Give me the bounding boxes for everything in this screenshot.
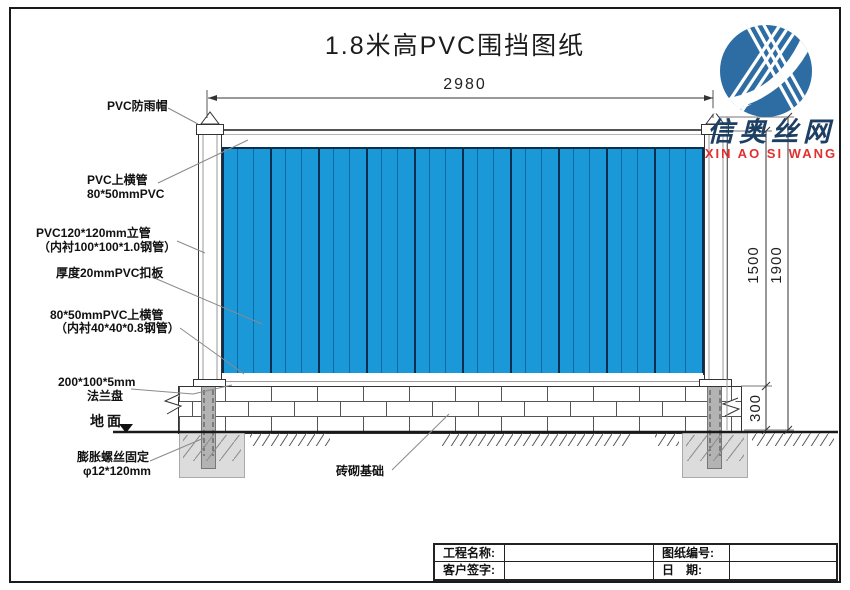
title-block-date-label: 日 期: [654, 562, 730, 579]
dim-height-total: 1900 [768, 235, 784, 295]
callout-anchor-2: φ12*120mm [83, 465, 151, 478]
brick-row [179, 387, 741, 402]
callout-panel: 厚度20mmPVC扣板 [56, 267, 163, 280]
title-block: 工程名称: 图纸编号: 客户签字: 日 期: [433, 543, 838, 581]
page-title: 1.8米高PVC围挡图纸 [255, 26, 655, 62]
title-block-project-label: 工程名称: [435, 545, 505, 562]
dim-height-panel: 1500 [745, 235, 761, 295]
drawing-canvas: 信奥丝网 XIN AO SI WANG 1.8米高PVC围挡图纸 2980 15… [0, 0, 850, 590]
bottom-rail-groove [221, 381, 703, 382]
callout-flange-1: 200*100*5mm [58, 376, 135, 389]
bottom-rail [221, 373, 703, 386]
dim-top-width: 2980 [425, 76, 505, 94]
logo-name-en: XIN AO SI WANG [698, 146, 844, 161]
callout-top-rail-2: 80*50mmPVC [87, 188, 164, 201]
brick-base-wall [178, 386, 742, 434]
callout-anchor-1: 膨胀螺丝固定 [77, 451, 149, 464]
dim-height-base: 300 [747, 378, 763, 438]
callout-ground: 地面 [90, 411, 124, 431]
callout-mid-rail-2: （内衬40*40*0.8钢管） [55, 322, 180, 335]
logo-name-cn: 信奥丝网 [696, 110, 846, 149]
callout-rain-cap: PVC防雨帽 [107, 100, 168, 113]
callout-top-rail-1: PVC上横管 [87, 174, 148, 187]
title-block-project-value [505, 545, 654, 562]
brick-row [179, 402, 741, 417]
fence-panel [222, 147, 704, 375]
callout-brick-foundation: 砖砌基础 [336, 465, 384, 478]
callout-post-1: PVC120*120mm立管 [36, 227, 151, 240]
left-post-steel-core [201, 386, 216, 469]
title-block-date-value [730, 562, 836, 579]
title-block-drawingno-label: 图纸编号: [654, 545, 730, 562]
brick-row [179, 417, 741, 431]
top-rail-groove [221, 134, 703, 135]
title-block-client-label: 客户签字: [435, 562, 505, 579]
callout-post-2: （内衬100*100*1.0钢管） [38, 241, 176, 254]
title-block-drawingno-value [730, 545, 836, 562]
right-post-steel-core [707, 386, 722, 469]
title-block-client-value [505, 562, 654, 579]
callout-flange-2: 法兰盘 [87, 390, 123, 403]
